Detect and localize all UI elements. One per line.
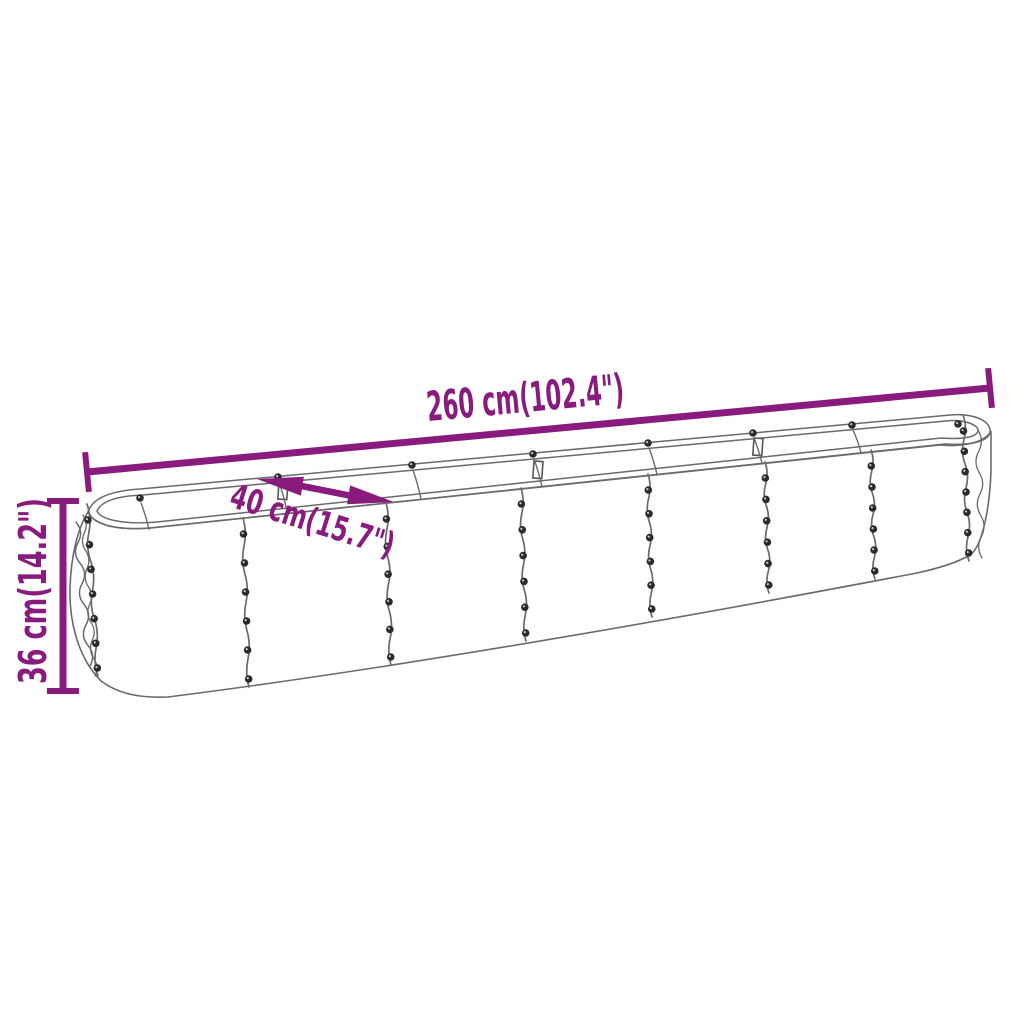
width-arrowhead-right bbox=[347, 485, 394, 504]
length-cap-right bbox=[988, 368, 992, 408]
height-dimension: 36 cm(14.2") bbox=[11, 498, 79, 691]
height-dimension-label: 36 cm(14.2") bbox=[11, 498, 55, 684]
diagram-canvas: 260 cm(102.4") 40 cm(15.7") 36 cm(14.2") bbox=[0, 0, 1024, 1024]
length-cap-left bbox=[85, 452, 89, 492]
length-dimension-label: 260 cm(102.4") bbox=[424, 365, 626, 431]
dimension-diagram: 260 cm(102.4") 40 cm(15.7") 36 cm(14.2") bbox=[0, 0, 1024, 1024]
planter-front-wall bbox=[70, 431, 991, 697]
planter-drawing bbox=[70, 415, 991, 698]
